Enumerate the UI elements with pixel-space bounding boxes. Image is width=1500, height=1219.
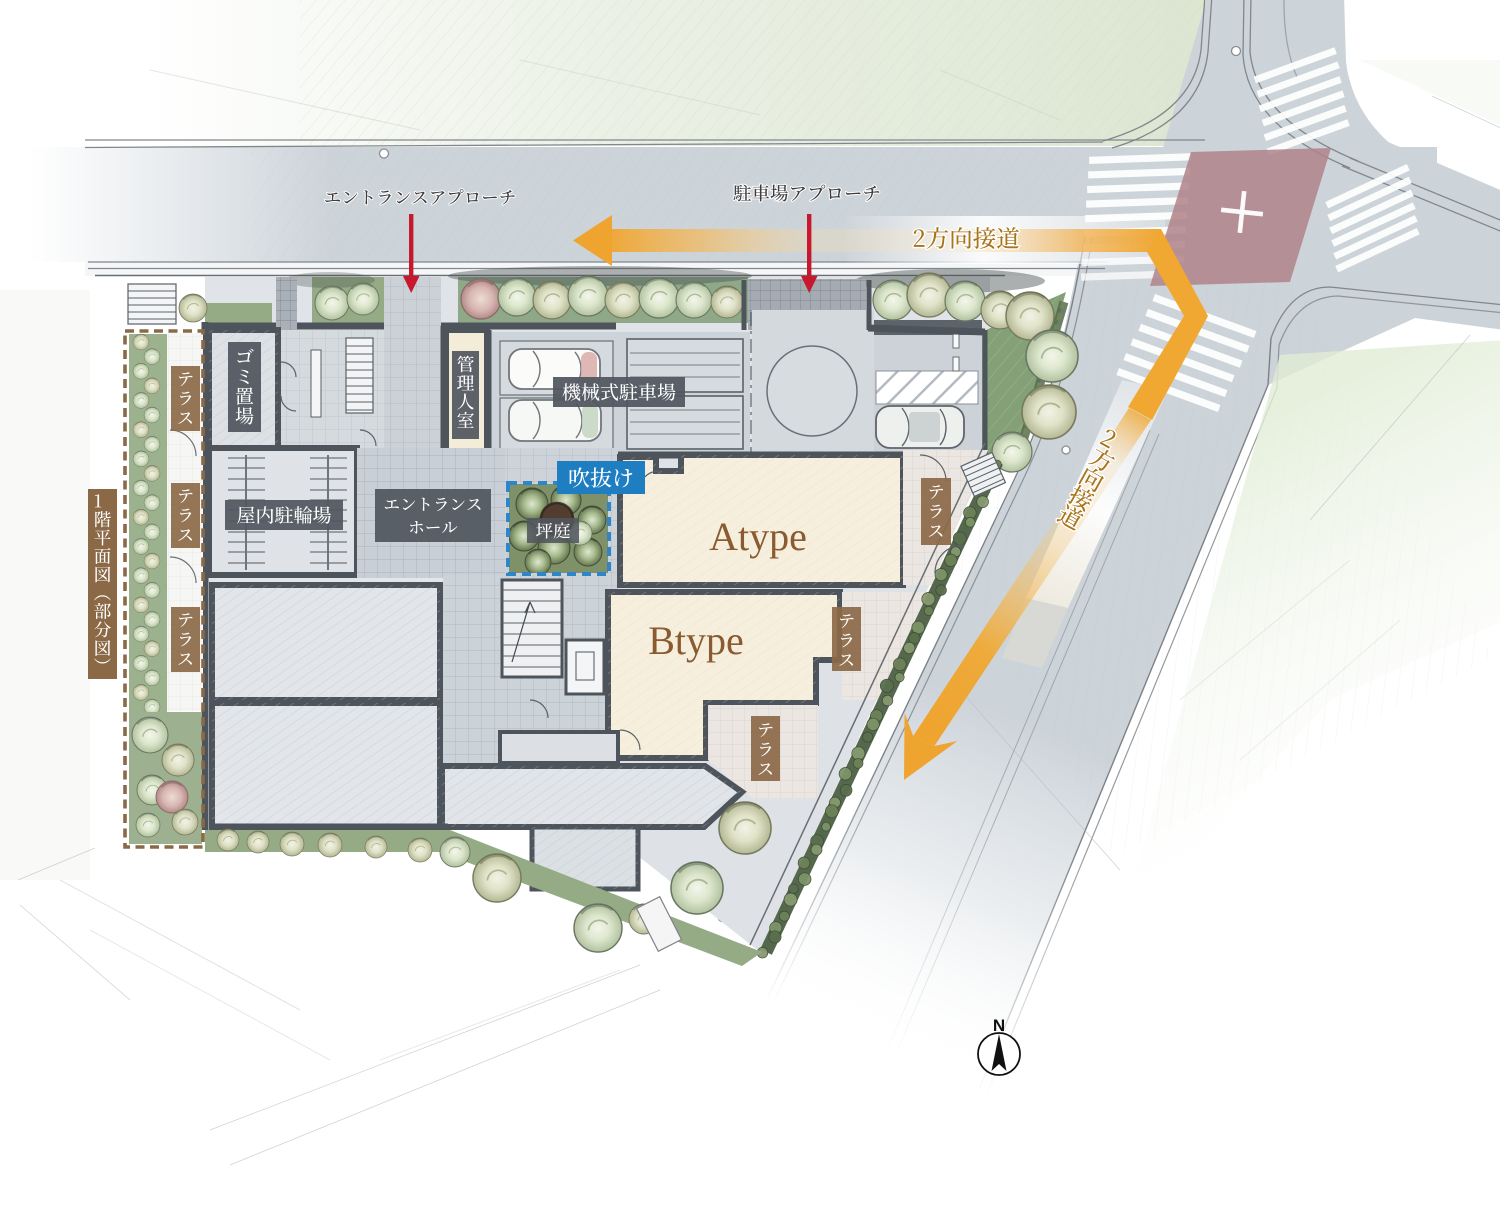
svg-text:Btype: Btype bbox=[648, 618, 744, 663]
svg-text:N: N bbox=[993, 1016, 1005, 1035]
svg-text:Atype: Atype bbox=[709, 514, 807, 559]
